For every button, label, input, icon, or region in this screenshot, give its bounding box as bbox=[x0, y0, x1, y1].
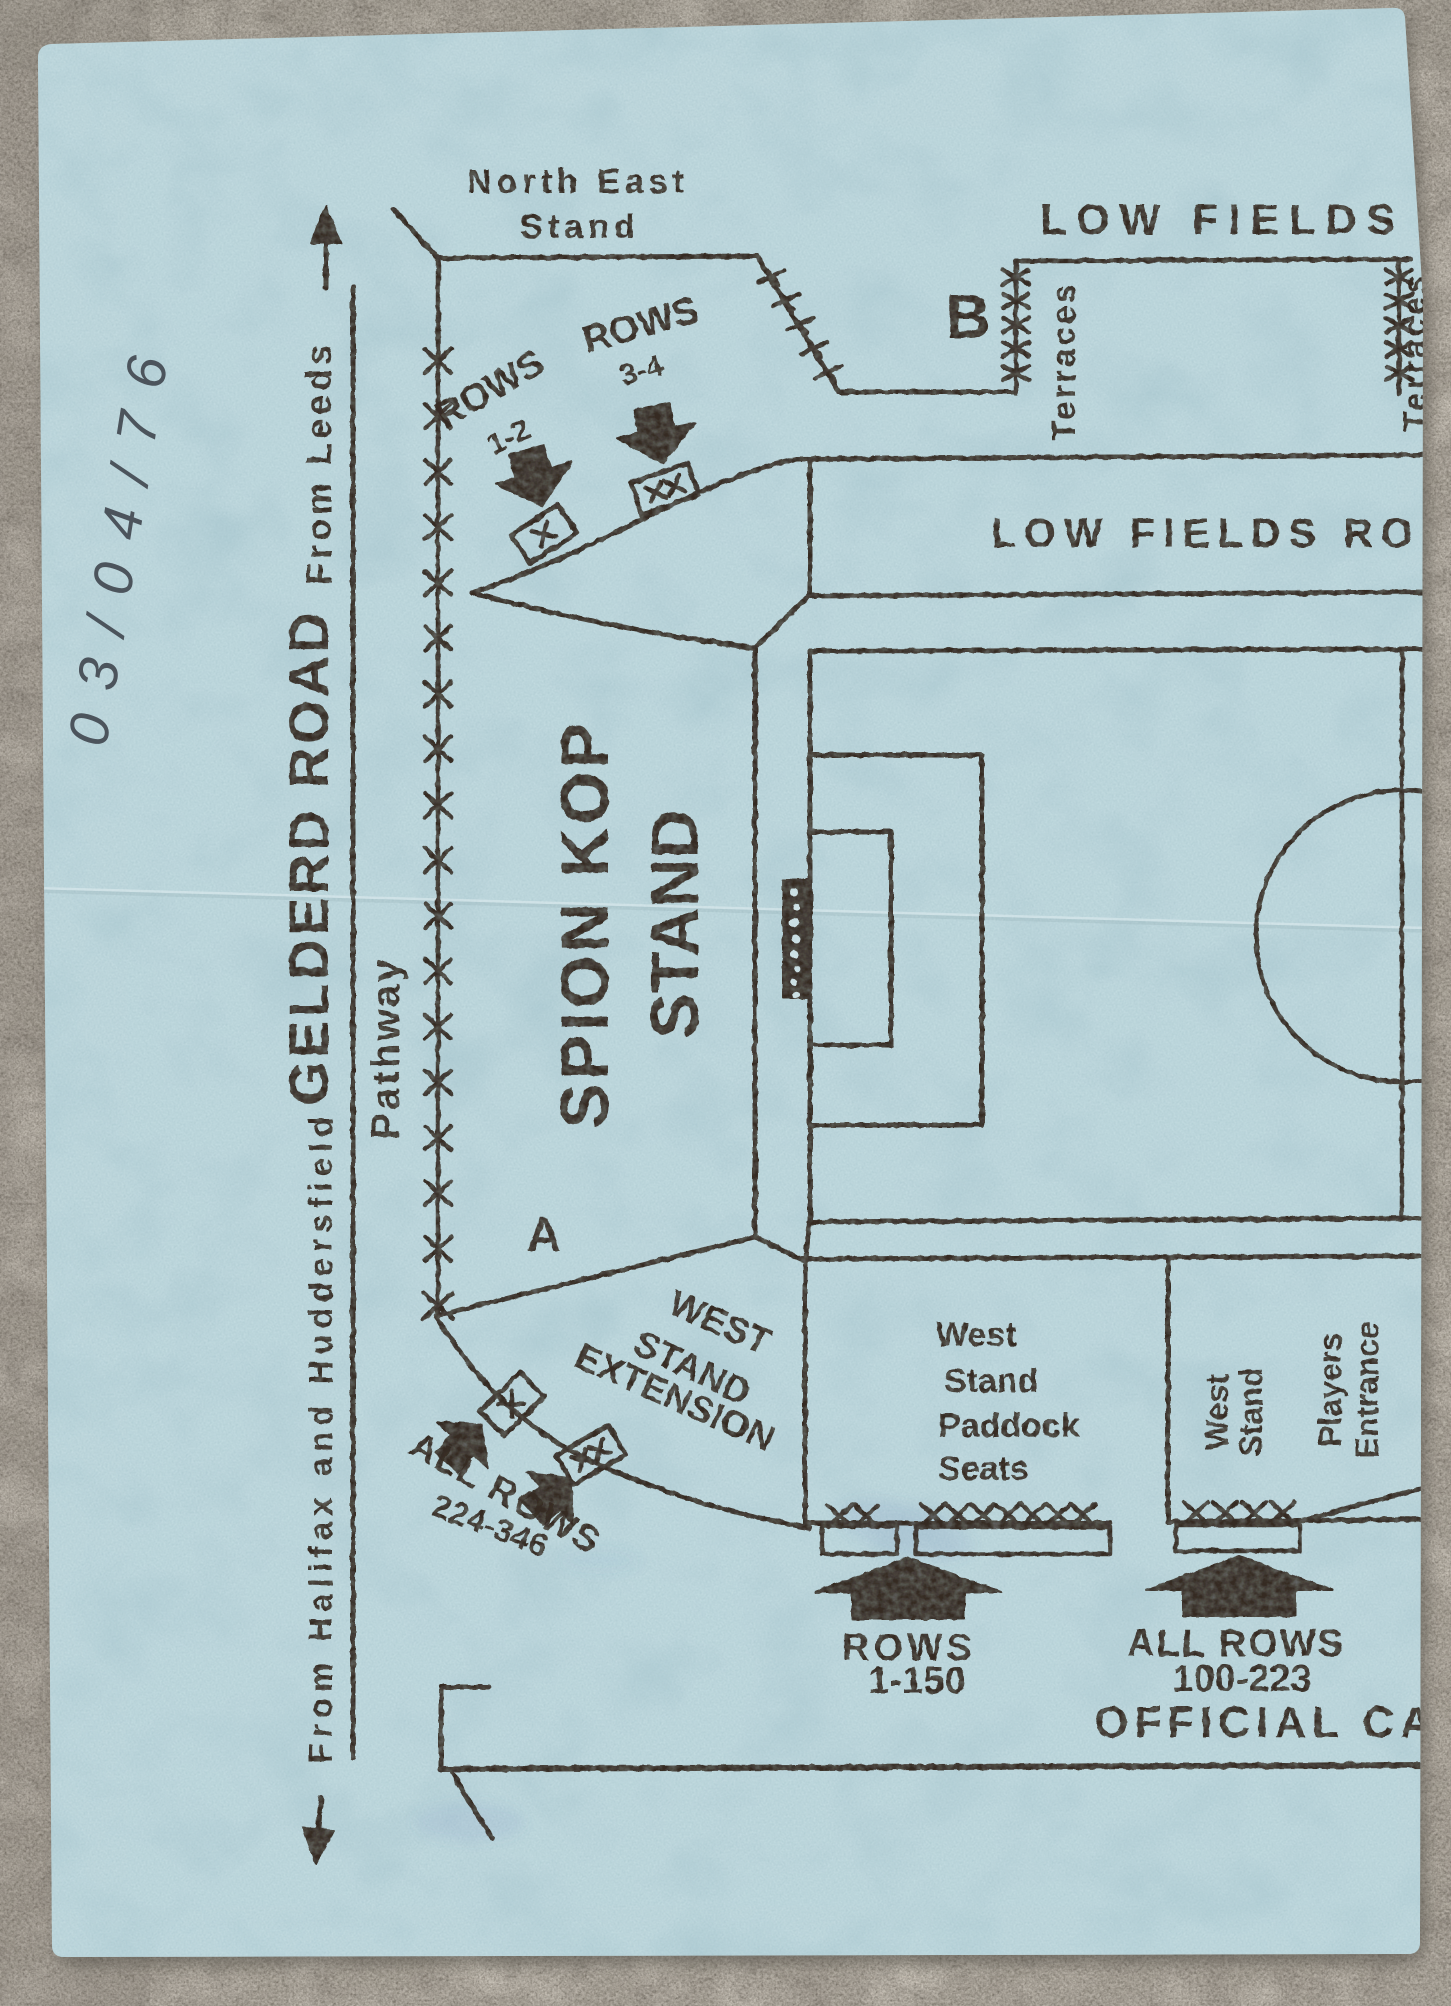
svg-text:GELDERD ROAD: GELDERD ROAD bbox=[277, 609, 340, 1105]
svg-text:1-150: 1-150 bbox=[868, 1660, 965, 1702]
svg-text:West: West bbox=[936, 1316, 1017, 1354]
svg-text:100-223: 100-223 bbox=[1172, 1658, 1311, 1700]
svg-text:Seats: Seats bbox=[938, 1450, 1029, 1488]
svg-text:Paddock: Paddock bbox=[938, 1407, 1080, 1445]
svg-text:Stand: Stand bbox=[1233, 1368, 1269, 1457]
svg-text:LOW FIELDS RO: LOW FIELDS RO bbox=[991, 510, 1421, 556]
svg-text:Stand: Stand bbox=[944, 1362, 1038, 1400]
svg-text:Players: Players bbox=[1312, 1333, 1348, 1447]
svg-text:OFFICIAL CA: OFFICIAL CA bbox=[1094, 1698, 1438, 1747]
svg-text:Stand: Stand bbox=[520, 208, 639, 246]
svg-text:B: B bbox=[946, 283, 991, 352]
svg-text:LOW FIELDS: LOW FIELDS bbox=[1040, 196, 1405, 244]
svg-text:A: A bbox=[527, 1209, 562, 1262]
svg-text:SPION KOP: SPION KOP bbox=[547, 719, 623, 1128]
svg-text:Pathway: Pathway bbox=[364, 956, 408, 1139]
svg-text:From Leeds: From Leeds bbox=[298, 341, 339, 585]
svg-text:West: West bbox=[1199, 1374, 1235, 1450]
svg-text:Terraces: Terraces bbox=[1045, 281, 1082, 440]
svg-text:STAND: STAND bbox=[637, 809, 713, 1038]
svg-text:Entrance: Entrance bbox=[1349, 1322, 1385, 1459]
svg-text:From Halifax and Huddersfield: From Halifax and Huddersfield bbox=[302, 1111, 339, 1764]
svg-text:North East: North East bbox=[467, 163, 689, 201]
